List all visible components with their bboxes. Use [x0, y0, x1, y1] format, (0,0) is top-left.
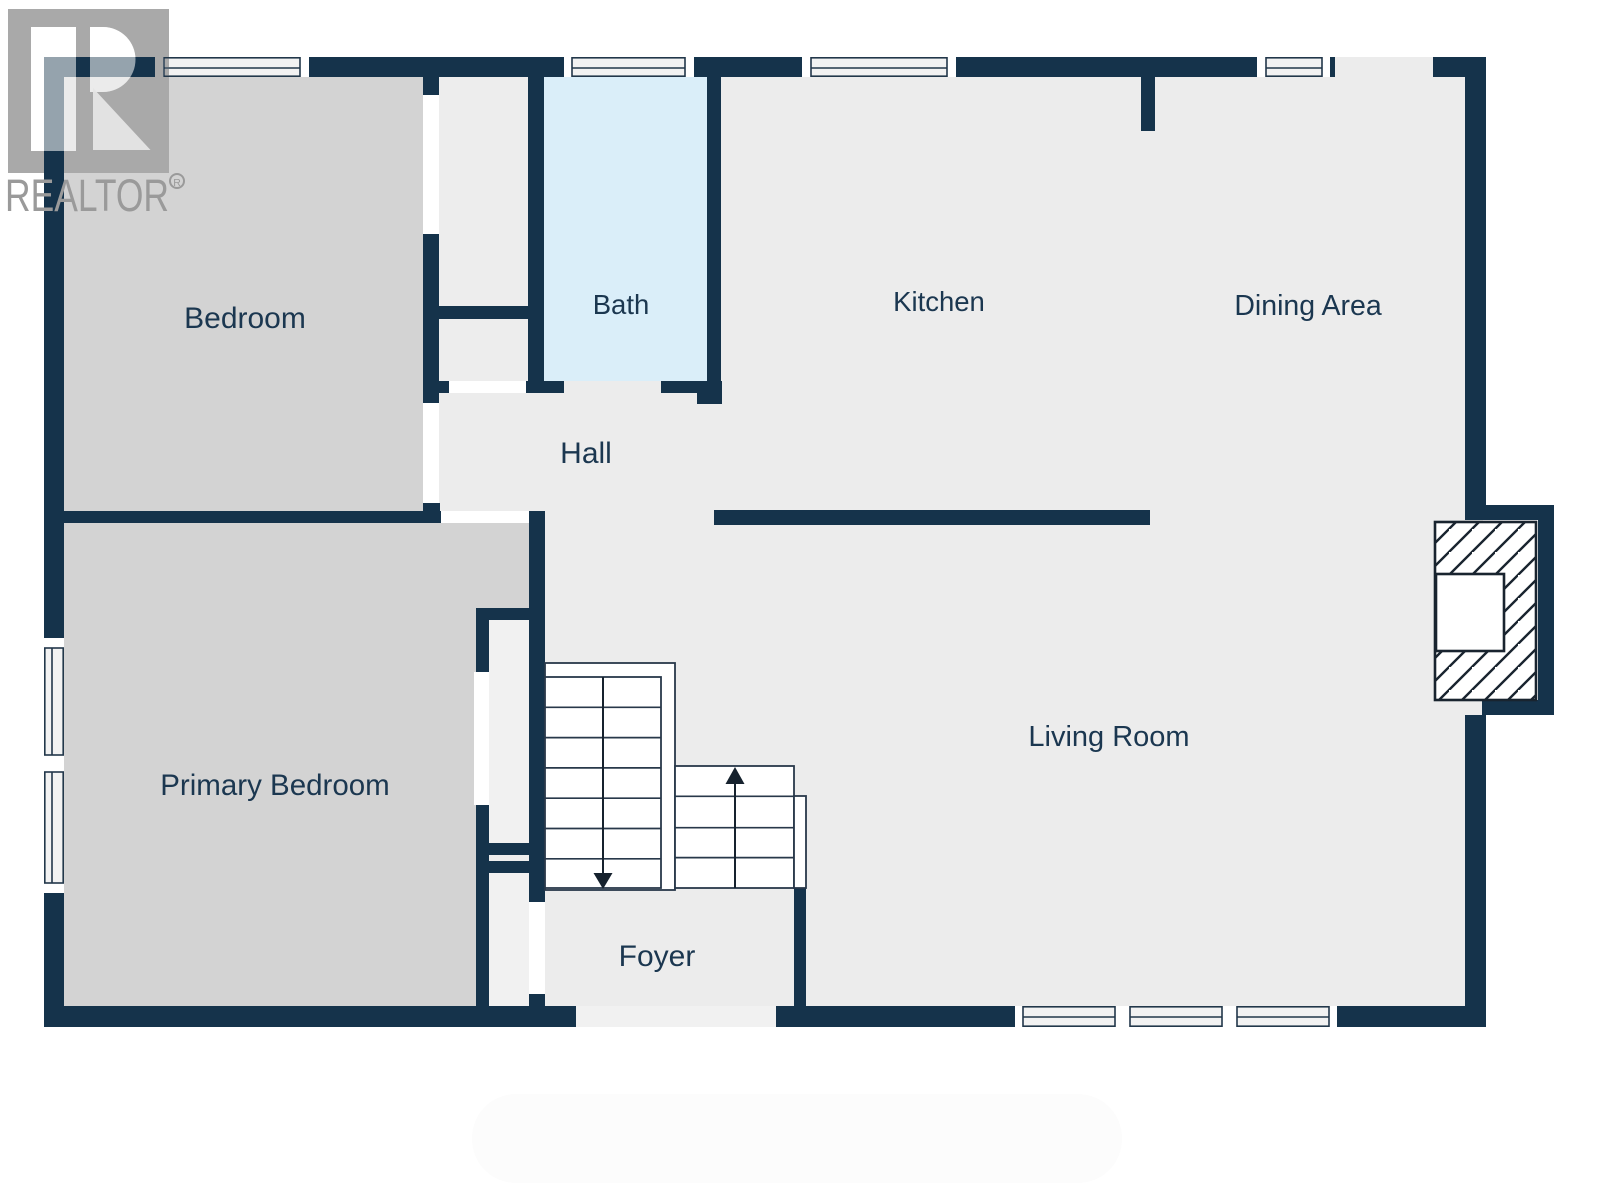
svg-text:Dining Area: Dining Area	[1234, 290, 1381, 322]
svg-text:R: R	[173, 177, 181, 189]
svg-text:Living Room: Living Room	[1028, 721, 1189, 753]
svg-text:Foyer: Foyer	[619, 940, 696, 973]
svg-text:Primary Bedroom: Primary Bedroom	[160, 769, 390, 802]
svg-text:Bedroom: Bedroom	[184, 302, 306, 335]
svg-text:Hall: Hall	[560, 437, 612, 470]
svg-text:REALTOR: REALTOR	[5, 170, 169, 221]
svg-text:Kitchen: Kitchen	[893, 286, 985, 317]
svg-text:Bath: Bath	[593, 289, 650, 320]
